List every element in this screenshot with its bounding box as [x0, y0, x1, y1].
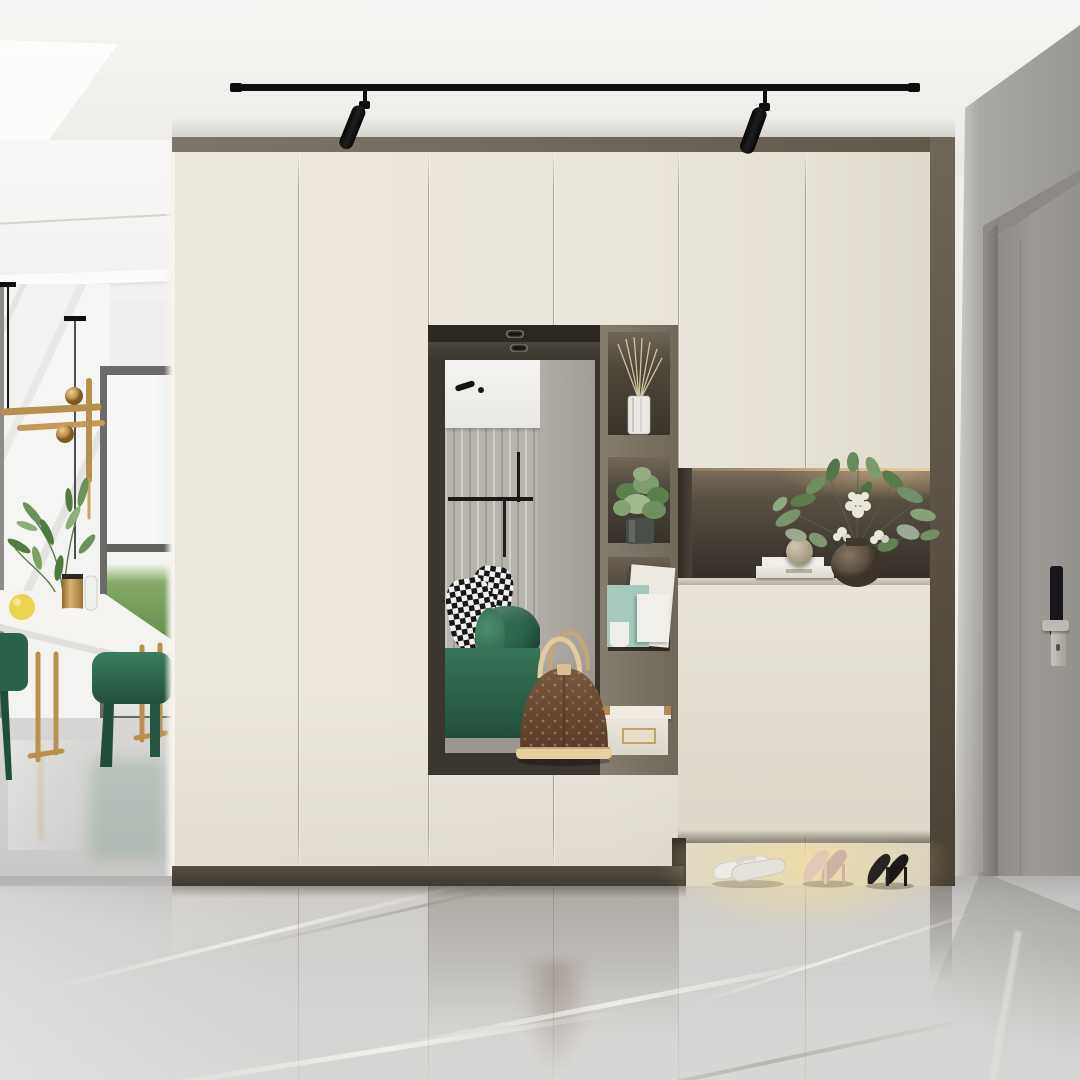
- mirror-ceiling-reflection: [445, 360, 540, 430]
- entry-door: [998, 182, 1080, 972]
- window-mullion: [107, 544, 172, 552]
- mirror-rail-post: [517, 452, 520, 502]
- niche-left-face: [678, 468, 692, 585]
- track-rail-endcap: [908, 83, 920, 92]
- black-high-heels: [864, 840, 918, 890]
- storage-box-corner: [664, 706, 671, 715]
- door-frame-jamb: [983, 224, 998, 914]
- nude-high-heels: [800, 836, 858, 888]
- niche-bouquet: [758, 440, 953, 590]
- ceiling-shadow: [172, 116, 955, 137]
- white-slippers: [708, 846, 794, 890]
- cabinet-plinth: [172, 866, 684, 886]
- window-glass-upper: [107, 375, 172, 544]
- handbag: [516, 610, 612, 768]
- reed-diffuser: [606, 336, 672, 436]
- floor-grout-line: [553, 886, 554, 1080]
- shoe-cabinet-doors: [678, 585, 930, 836]
- smart-lock-lever: [1042, 620, 1069, 631]
- door-seam: [298, 152, 299, 868]
- track-rail-endcap: [230, 83, 242, 92]
- cabinet-top-band: [172, 137, 955, 152]
- shelf-plant: [604, 462, 674, 546]
- mirror-clothes-rail: [448, 497, 533, 501]
- nook-spotlight: [506, 330, 524, 338]
- floor-grout-line: [428, 886, 429, 1080]
- small-cup: [610, 622, 629, 647]
- track-rail: [237, 84, 915, 91]
- entryway-scene: [0, 0, 1080, 1080]
- dining-right-edge: [164, 140, 172, 886]
- cabinet-left-highlight: [172, 152, 175, 868]
- dining-table-group: [0, 555, 172, 785]
- dining-area: [0, 140, 172, 886]
- white-gift-box: [637, 594, 669, 642]
- mirror-spotlight-dot: [478, 387, 484, 393]
- door-panel-seam: [1020, 240, 1021, 920]
- storage-box-lid: [603, 706, 671, 719]
- floor-grout-line: [298, 886, 299, 1080]
- smart-lock-keyhole: [1056, 644, 1060, 651]
- mirror-hanging-strap: [503, 501, 506, 557]
- nook-spotlight: [510, 344, 528, 352]
- storage-box-label: [622, 728, 656, 744]
